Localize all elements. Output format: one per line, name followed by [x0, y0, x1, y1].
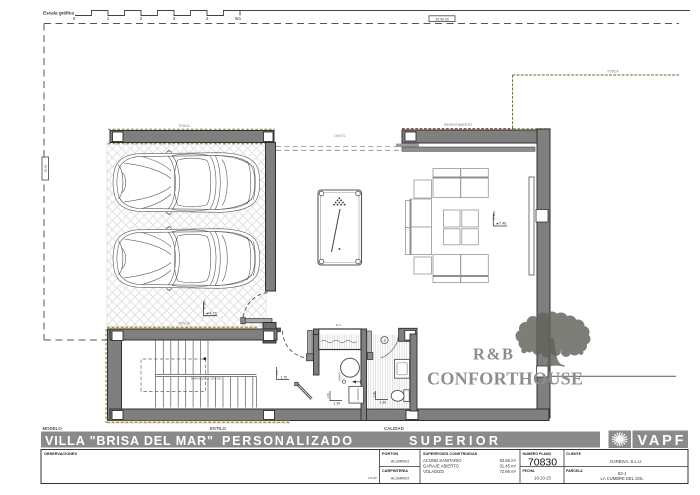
svg-text:PORTON: PORTON: [382, 452, 398, 456]
svg-text:PARCELA: PARCELA: [566, 469, 583, 473]
svg-text:REVESTIMIENTO: REVESTIMIENTO: [444, 123, 472, 127]
svg-text:GARBIVA, S.L.U.: GARBIVA, S.L.U.: [610, 459, 642, 464]
svg-text:ALUMINIO: ALUMINIO: [391, 460, 409, 464]
svg-text:TOSCA: TOSCA: [178, 321, 190, 325]
svg-text:Escala gráfica: Escala gráfica: [43, 11, 74, 16]
svg-text:ESTILO: ESTILO: [210, 426, 226, 431]
svg-text:29.40.03: 29.40.03: [435, 17, 448, 21]
svg-text:R&B: R&B: [473, 345, 513, 364]
svg-text:7.46: 7.46: [499, 222, 506, 226]
svg-text:72.95 m²: 72.95 m²: [499, 469, 516, 474]
svg-text:1.40: 1.40: [373, 392, 376, 397]
svg-text:MODELO: MODELO: [43, 426, 63, 431]
svg-text:1.05: 1.05: [276, 370, 279, 375]
svg-text:GARAJE ABIERTO: GARAJE ABIERTO: [423, 464, 460, 469]
svg-text:16-10-23: 16-10-23: [534, 476, 551, 481]
svg-text:ACOND.SANITARIO: ACOND.SANITARIO: [423, 458, 462, 463]
svg-text:VOLADIZO: VOLADIZO: [423, 469, 445, 474]
svg-text:29.40: 29.40: [44, 164, 48, 172]
svg-text:1.30: 1.30: [334, 402, 341, 406]
svg-text:LA CUMBRE DEL SOL: LA CUMBRE DEL SOL: [601, 476, 645, 481]
svg-text:31.45 m²: 31.45 m²: [499, 464, 516, 469]
svg-text:276 EP: 276 EP: [368, 476, 377, 480]
svg-text:CLIENTE: CLIENTE: [566, 452, 582, 456]
svg-text:P.TERR: P.TERR: [492, 211, 496, 220]
svg-text:ALUMINIO: ALUMINIO: [391, 477, 409, 481]
svg-text:1.75: 1.75: [281, 376, 288, 380]
svg-text:TOSCA: TOSCA: [607, 70, 619, 74]
svg-text:LAVABO: LAVABO: [339, 372, 342, 382]
svg-text:70830: 70830: [528, 456, 557, 468]
svg-text:SUPERFICIES CONSTRUIDAS: SUPERFICIES CONSTRUIDAS: [423, 452, 478, 456]
svg-text:E.V.: E.V.: [336, 323, 342, 327]
svg-text:CALIDAD: CALIDAD: [384, 426, 404, 431]
svg-text:5m: 5m: [235, 16, 241, 21]
svg-text:OBSERVACIONES: OBSERVACIONES: [44, 452, 77, 456]
svg-text:TOSCA: TOSCA: [178, 124, 190, 128]
svg-text:P.TERR: P.TERR: [202, 300, 206, 309]
svg-text:1.50: 1.50: [327, 393, 330, 398]
svg-text:BARANDILLA CRISTAL: BARANDILLA CRISTAL: [191, 376, 222, 380]
svg-text:LAVADORA: LAVADORA: [357, 388, 360, 402]
svg-text:1.30: 1.30: [380, 401, 387, 405]
svg-text:FECHA: FECHA: [523, 469, 536, 473]
svg-text:VILLA "BRISA DEL MAR": VILLA "BRISA DEL MAR": [45, 434, 213, 448]
svg-text:NUMERO PLANO: NUMERO PLANO: [523, 452, 552, 456]
svg-text:CONFORTHOUSE: CONFORTHOUSE: [427, 369, 583, 389]
svg-text:CARPINTERIA: CARPINTERIA: [382, 469, 408, 473]
svg-text:4.70: 4.70: [210, 311, 217, 315]
svg-text:DINTEL: DINTEL: [334, 134, 346, 138]
svg-text:PERSONALIZADO: PERSONALIZADO: [222, 434, 352, 448]
svg-text:93.65 m²: 93.65 m²: [499, 458, 516, 463]
